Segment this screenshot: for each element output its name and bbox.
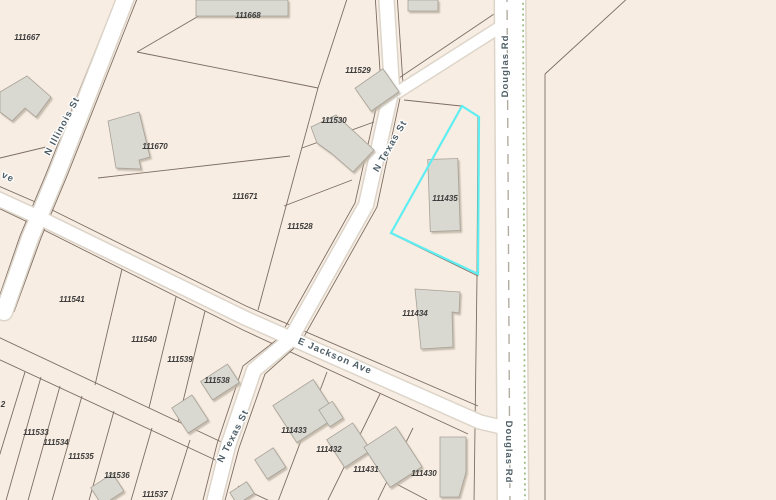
- parcel-label[interactable]: 111432: [316, 445, 342, 454]
- parcel-label[interactable]: 111433: [281, 426, 307, 435]
- parcel-label[interactable]: 111668: [235, 11, 261, 20]
- parcel-label[interactable]: 111430: [411, 469, 437, 478]
- parcel-label[interactable]: 111541: [59, 295, 85, 304]
- parcel-label[interactable]: 111539: [167, 355, 193, 364]
- parcel-map[interactable]: 111667 111668 111529 111530 111670 11167…: [0, 0, 776, 500]
- map-canvas[interactable]: 111667 111668 111529 111530 111670 11167…: [0, 0, 776, 500]
- parcel-label[interactable]: 111529: [345, 66, 371, 75]
- street-label-douglas-bottom: Douglas Rd: [503, 421, 514, 484]
- parcel-label[interactable]: 111536: [104, 471, 130, 480]
- parcel-label[interactable]: 111533: [23, 428, 49, 437]
- parcel-label[interactable]: 111670: [142, 142, 168, 151]
- parcel-label[interactable]: 111528: [287, 222, 313, 231]
- parcel-label[interactable]: 111535: [68, 452, 94, 461]
- parcel-label[interactable]: 111431: [353, 465, 379, 474]
- parcel-label[interactable]: 111540: [131, 335, 157, 344]
- parcel-label[interactable]: 111671: [232, 192, 258, 201]
- parcel-label[interactable]: 111667: [14, 33, 40, 42]
- parcel-label[interactable]: 111530: [321, 116, 347, 125]
- parcel-label[interactable]: 111534: [43, 438, 69, 447]
- parcel-label[interactable]: 111435: [432, 194, 458, 203]
- parcel-label[interactable]: 111434: [402, 309, 428, 318]
- building: [408, 0, 438, 11]
- parcel-label[interactable]: 111537: [142, 490, 168, 499]
- parcel-label[interactable]: 111538: [204, 376, 230, 385]
- parcel-label-partial[interactable]: 2: [0, 400, 6, 409]
- street-label-douglas-top: Douglas Rd: [500, 35, 511, 98]
